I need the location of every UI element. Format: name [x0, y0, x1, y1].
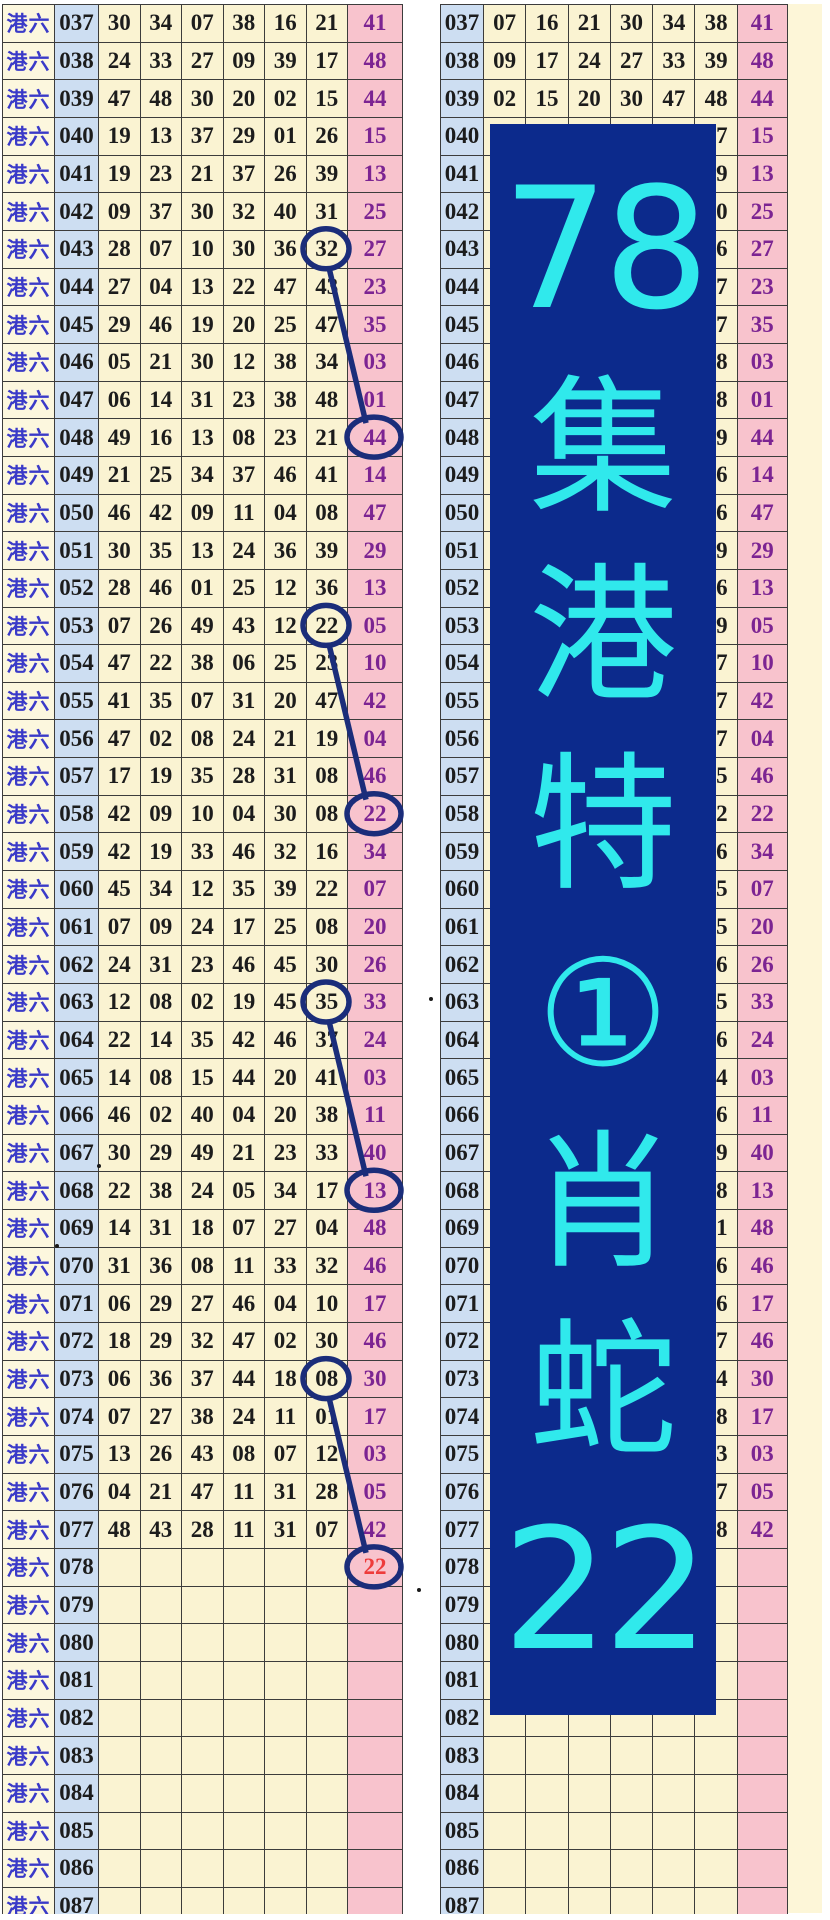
draw-id: 041: [441, 156, 484, 194]
draw-id: 050: [441, 495, 484, 533]
number-cell: [182, 1737, 224, 1775]
special-number-cell: 44: [348, 80, 403, 118]
number-cell: 47: [99, 645, 141, 683]
number-cell: 08: [307, 1361, 349, 1399]
special-number-cell: 03: [738, 1436, 788, 1474]
number-cell: 08: [182, 1248, 224, 1286]
number-cell: 31: [141, 946, 183, 984]
special-number-cell: 17: [348, 1285, 403, 1323]
number-cell: 37: [307, 1022, 349, 1060]
special-number-cell: 22: [348, 1549, 403, 1587]
number-cell: [99, 1813, 141, 1851]
number-cell: 10: [182, 231, 224, 269]
draw-id: 062: [55, 946, 99, 984]
number-cell: 21: [141, 344, 183, 382]
special-number-cell: 07: [738, 871, 788, 909]
draw-id: 054: [55, 645, 99, 683]
draw-id: 070: [441, 1248, 484, 1286]
number-cell: 46: [141, 570, 183, 608]
draw-id: 049: [441, 457, 484, 495]
special-number-cell: 13: [738, 1172, 788, 1210]
number-cell: 04: [99, 1474, 141, 1512]
number-cell: [611, 1813, 653, 1851]
draw-id: 081: [55, 1662, 99, 1700]
number-cell: 07: [141, 231, 183, 269]
draw-id: 085: [441, 1813, 484, 1851]
draw-id: 052: [441, 570, 484, 608]
number-cell: [484, 1888, 526, 1914]
number-cell: 46: [224, 946, 266, 984]
number-cell: 24: [182, 909, 224, 947]
row-label: 港六: [3, 1398, 55, 1436]
number-cell: [307, 1662, 349, 1700]
draw-id: 072: [441, 1323, 484, 1361]
number-cell: 46: [265, 1022, 307, 1060]
number-cell: 24: [224, 1398, 266, 1436]
number-cell: [99, 1549, 141, 1587]
draw-id: 087: [441, 1888, 484, 1914]
number-cell: 08: [224, 1436, 266, 1474]
number-cell: 35: [182, 758, 224, 796]
number-cell: 46: [141, 306, 183, 344]
number-cell: [224, 1850, 266, 1888]
draw-id: 086: [55, 1850, 99, 1888]
banner-line: 78: [502, 165, 704, 333]
draw-id: 083: [55, 1737, 99, 1775]
number-cell: 18: [182, 1210, 224, 1248]
number-cell: 14: [141, 382, 183, 420]
draw-id: 067: [55, 1135, 99, 1173]
row-label: 港六: [3, 871, 55, 909]
draw-id: 053: [55, 608, 99, 646]
draw-id: 085: [55, 1813, 99, 1851]
special-number-cell: 44: [738, 80, 788, 118]
number-cell: 28: [99, 231, 141, 269]
number-cell: 09: [141, 796, 183, 834]
row-label: 港六: [3, 570, 55, 608]
number-cell: 49: [99, 419, 141, 457]
number-cell: 07: [265, 1436, 307, 1474]
draw-id: 064: [441, 1022, 484, 1060]
special-number-cell: [738, 1662, 788, 1700]
special-number-cell: [738, 1850, 788, 1888]
number-cell: 20: [569, 80, 611, 118]
draw-id: 053: [441, 608, 484, 646]
special-number-cell: 29: [738, 532, 788, 570]
draw-id: 039: [55, 80, 99, 118]
number-cell: 41: [307, 457, 349, 495]
number-cell: 29: [224, 118, 266, 156]
number-cell: 01: [307, 1398, 349, 1436]
draw-id: 062: [441, 946, 484, 984]
number-cell: 29: [141, 1135, 183, 1173]
number-cell: 12: [182, 871, 224, 909]
special-number-cell: 42: [738, 1511, 788, 1549]
number-cell: 34: [653, 5, 695, 43]
banner-line: 蛇: [529, 1317, 677, 1465]
number-cell: [653, 1850, 695, 1888]
special-number-cell: 22: [738, 796, 788, 834]
number-cell: 15: [307, 80, 349, 118]
number-cell: 01: [265, 118, 307, 156]
number-cell: [265, 1662, 307, 1700]
number-cell: 18: [265, 1361, 307, 1399]
number-cell: 38: [265, 382, 307, 420]
number-cell: 34: [307, 344, 349, 382]
number-cell: 11: [265, 1398, 307, 1436]
number-cell: 02: [484, 80, 526, 118]
number-cell: 38: [265, 344, 307, 382]
special-number-cell: 10: [738, 645, 788, 683]
number-cell: [307, 1624, 349, 1662]
special-number-cell: [348, 1700, 403, 1738]
special-number-cell: 17: [738, 1285, 788, 1323]
row-label: 港六: [3, 1549, 55, 1587]
number-cell: 24: [224, 532, 266, 570]
special-number-cell: 07: [348, 871, 403, 909]
draw-id: 060: [55, 871, 99, 909]
number-cell: 28: [182, 1511, 224, 1549]
special-number-cell: 05: [348, 1474, 403, 1512]
number-cell: [611, 1888, 653, 1914]
number-cell: 13: [141, 118, 183, 156]
number-cell: 16: [141, 419, 183, 457]
number-cell: 28: [224, 758, 266, 796]
draw-id: 056: [441, 720, 484, 758]
number-cell: 05: [224, 1172, 266, 1210]
number-cell: [653, 1813, 695, 1851]
number-cell: 44: [224, 1361, 266, 1399]
number-cell: 09: [99, 193, 141, 231]
draw-id: 038: [55, 43, 99, 81]
draw-id: 054: [441, 645, 484, 683]
special-number-cell: [348, 1850, 403, 1888]
number-cell: 39: [307, 156, 349, 194]
number-cell: 36: [307, 570, 349, 608]
number-cell: 13: [182, 419, 224, 457]
number-cell: 08: [307, 758, 349, 796]
draw-id: 052: [55, 570, 99, 608]
special-number-cell: 33: [738, 984, 788, 1022]
number-cell: 42: [141, 495, 183, 533]
number-cell: 30: [611, 80, 653, 118]
number-cell: [182, 1662, 224, 1700]
number-cell: 39: [307, 532, 349, 570]
number-cell: 46: [99, 1097, 141, 1135]
number-cell: 09: [484, 43, 526, 81]
number-cell: 11: [224, 1248, 266, 1286]
number-cell: 22: [307, 608, 349, 646]
number-cell: [526, 1850, 568, 1888]
number-cell: 26: [141, 1436, 183, 1474]
number-cell: [224, 1587, 266, 1625]
number-cell: 04: [224, 1097, 266, 1135]
number-cell: 30: [307, 946, 349, 984]
number-cell: [484, 1775, 526, 1813]
number-cell: 39: [695, 43, 737, 81]
draw-id: 046: [441, 344, 484, 382]
number-cell: [224, 1549, 266, 1587]
number-cell: 11: [224, 1474, 266, 1512]
draw-id: 037: [55, 5, 99, 43]
number-cell: 30: [182, 193, 224, 231]
row-label: 港六: [3, 758, 55, 796]
number-cell: 24: [224, 720, 266, 758]
number-cell: 11: [224, 1511, 266, 1549]
number-cell: 19: [224, 984, 266, 1022]
row-label: 港六: [3, 231, 55, 269]
special-number-cell: [348, 1737, 403, 1775]
number-cell: 47: [307, 683, 349, 721]
number-cell: [695, 1888, 737, 1914]
number-cell: [569, 1850, 611, 1888]
row-label: 港六: [3, 1172, 55, 1210]
number-cell: 13: [182, 532, 224, 570]
number-cell: 19: [99, 118, 141, 156]
draw-id: 074: [55, 1398, 99, 1436]
number-cell: 17: [99, 758, 141, 796]
number-cell: 09: [141, 909, 183, 947]
prediction-banner: 78集港特①肖蛇22: [490, 124, 716, 1715]
draw-id: 076: [55, 1474, 99, 1512]
draw-id: 037: [441, 5, 484, 43]
draw-id: 061: [441, 909, 484, 947]
special-number-cell: [348, 1587, 403, 1625]
number-cell: 34: [141, 871, 183, 909]
number-cell: 39: [265, 871, 307, 909]
draw-id: 048: [55, 419, 99, 457]
special-number-cell: 47: [348, 495, 403, 533]
number-cell: [653, 1888, 695, 1914]
number-cell: [141, 1624, 183, 1662]
ink-speck: [55, 1244, 59, 1248]
number-cell: [307, 1813, 349, 1851]
draw-id: 045: [55, 306, 99, 344]
row-label: 港六: [3, 1135, 55, 1173]
number-cell: 25: [265, 306, 307, 344]
draw-id: 073: [55, 1361, 99, 1399]
special-number-cell: 15: [738, 118, 788, 156]
special-number-cell: 40: [348, 1135, 403, 1173]
number-cell: 15: [526, 80, 568, 118]
number-cell: 27: [265, 1210, 307, 1248]
number-cell: 32: [224, 193, 266, 231]
number-cell: [611, 1737, 653, 1775]
number-cell: 22: [99, 1172, 141, 1210]
number-cell: 15: [182, 1059, 224, 1097]
row-label: 港六: [3, 1775, 55, 1813]
draw-id: 065: [441, 1059, 484, 1097]
special-number-cell: 10: [348, 645, 403, 683]
number-cell: 31: [224, 683, 266, 721]
number-cell: 19: [182, 306, 224, 344]
page: { "colors": { "banner_bg": "#0c2a8c", "b…: [0, 0, 830, 1920]
special-number-cell: 03: [738, 344, 788, 382]
draw-id: 043: [55, 231, 99, 269]
special-number-cell: 24: [738, 1022, 788, 1060]
draw-id: 065: [55, 1059, 99, 1097]
number-cell: 31: [307, 193, 349, 231]
draw-id: 087: [55, 1888, 99, 1914]
number-cell: 07: [484, 5, 526, 43]
number-cell: 37: [182, 118, 224, 156]
number-cell: 12: [265, 570, 307, 608]
row-label: 港六: [3, 1888, 55, 1914]
row-label: 港六: [3, 1022, 55, 1060]
number-cell: [265, 1775, 307, 1813]
number-cell: 09: [182, 495, 224, 533]
number-cell: 41: [307, 1059, 349, 1097]
draw-id: 039: [441, 80, 484, 118]
special-number-cell: 13: [738, 156, 788, 194]
number-cell: 38: [182, 645, 224, 683]
number-cell: 43: [307, 269, 349, 307]
banner-line: 集: [529, 374, 677, 522]
number-cell: 08: [141, 1059, 183, 1097]
number-cell: 22: [307, 871, 349, 909]
number-cell: [265, 1813, 307, 1851]
right-margin-band: [787, 4, 822, 1913]
number-cell: 25: [265, 909, 307, 947]
number-cell: 35: [141, 532, 183, 570]
draw-id: 084: [55, 1775, 99, 1813]
row-label: 港六: [3, 269, 55, 307]
number-cell: [307, 1587, 349, 1625]
number-cell: 37: [141, 193, 183, 231]
draw-id: 063: [55, 984, 99, 1022]
number-cell: 24: [99, 43, 141, 81]
number-cell: [611, 1850, 653, 1888]
special-number-cell: 01: [348, 382, 403, 420]
number-cell: 10: [307, 1285, 349, 1323]
number-cell: [265, 1888, 307, 1914]
special-number-cell: [738, 1775, 788, 1813]
special-number-cell: 33: [348, 984, 403, 1022]
draw-id: 040: [55, 118, 99, 156]
number-cell: 02: [182, 984, 224, 1022]
draw-id: 042: [441, 193, 484, 231]
special-number-cell: 30: [348, 1361, 403, 1399]
number-cell: 35: [141, 683, 183, 721]
number-cell: 07: [224, 1210, 266, 1248]
special-number-cell: 23: [738, 269, 788, 307]
number-cell: 44: [224, 1059, 266, 1097]
number-cell: [99, 1587, 141, 1625]
number-cell: [99, 1850, 141, 1888]
number-cell: [307, 1775, 349, 1813]
number-cell: 13: [99, 1436, 141, 1474]
number-cell: [307, 1549, 349, 1587]
special-number-cell: [738, 1700, 788, 1738]
number-cell: [307, 1737, 349, 1775]
number-cell: 11: [224, 495, 266, 533]
draw-id: 078: [55, 1549, 99, 1587]
draw-id: 045: [441, 306, 484, 344]
special-number-cell: 20: [738, 909, 788, 947]
number-cell: [265, 1850, 307, 1888]
row-label: 港六: [3, 984, 55, 1022]
special-number-cell: [348, 1888, 403, 1914]
row-label: 港六: [3, 1474, 55, 1512]
row-label: 港六: [3, 796, 55, 834]
draw-id: 056: [55, 720, 99, 758]
number-cell: 47: [265, 269, 307, 307]
special-number-cell: 17: [348, 1398, 403, 1436]
number-cell: [141, 1549, 183, 1587]
number-cell: 21: [307, 419, 349, 457]
number-cell: [265, 1737, 307, 1775]
number-cell: [99, 1662, 141, 1700]
draw-id: 050: [55, 495, 99, 533]
draw-id: 057: [55, 758, 99, 796]
draw-id: 038: [441, 43, 484, 81]
draw-id: 076: [441, 1474, 484, 1512]
number-cell: 28: [99, 570, 141, 608]
draw-id: 057: [441, 758, 484, 796]
number-cell: 48: [695, 80, 737, 118]
number-cell: 31: [99, 1248, 141, 1286]
number-cell: 06: [224, 645, 266, 683]
number-cell: [141, 1662, 183, 1700]
draw-id: 082: [441, 1700, 484, 1738]
number-cell: 46: [224, 1285, 266, 1323]
number-cell: 48: [307, 382, 349, 420]
special-number-cell: [738, 1737, 788, 1775]
draw-id: 046: [55, 344, 99, 382]
row-label: 港六: [3, 720, 55, 758]
special-number-cell: 03: [348, 344, 403, 382]
row-label: 港六: [3, 683, 55, 721]
special-number-cell: 48: [348, 1210, 403, 1248]
row-label: 港六: [3, 457, 55, 495]
special-number-cell: 14: [738, 457, 788, 495]
number-cell: 32: [265, 833, 307, 871]
number-cell: 21: [141, 1474, 183, 1512]
number-cell: 18: [99, 1323, 141, 1361]
number-cell: 17: [526, 43, 568, 81]
number-cell: 30: [182, 344, 224, 382]
number-cell: 23: [141, 156, 183, 194]
number-cell: 21: [265, 720, 307, 758]
number-cell: 19: [307, 720, 349, 758]
number-cell: 31: [182, 382, 224, 420]
row-label: 港六: [3, 946, 55, 984]
draw-id: 066: [55, 1097, 99, 1135]
draw-id: 079: [441, 1587, 484, 1625]
special-number-cell: [348, 1624, 403, 1662]
number-cell: 29: [141, 1323, 183, 1361]
number-cell: [569, 1737, 611, 1775]
draw-id: 051: [441, 532, 484, 570]
ink-speck: [417, 1588, 421, 1592]
row-label: 港六: [3, 1850, 55, 1888]
number-cell: 23: [182, 946, 224, 984]
number-cell: 07: [182, 5, 224, 43]
number-cell: 23: [307, 645, 349, 683]
number-cell: 33: [141, 43, 183, 81]
row-label: 港六: [3, 1285, 55, 1323]
draw-id: 075: [55, 1436, 99, 1474]
special-number-cell: 03: [738, 1059, 788, 1097]
number-cell: 02: [141, 1097, 183, 1135]
draw-id: 077: [441, 1511, 484, 1549]
row-label: 港六: [3, 5, 55, 43]
number-cell: 38: [141, 1172, 183, 1210]
number-cell: [224, 1624, 266, 1662]
number-cell: 25: [265, 645, 307, 683]
number-cell: 20: [265, 1097, 307, 1135]
draw-id: 077: [55, 1511, 99, 1549]
